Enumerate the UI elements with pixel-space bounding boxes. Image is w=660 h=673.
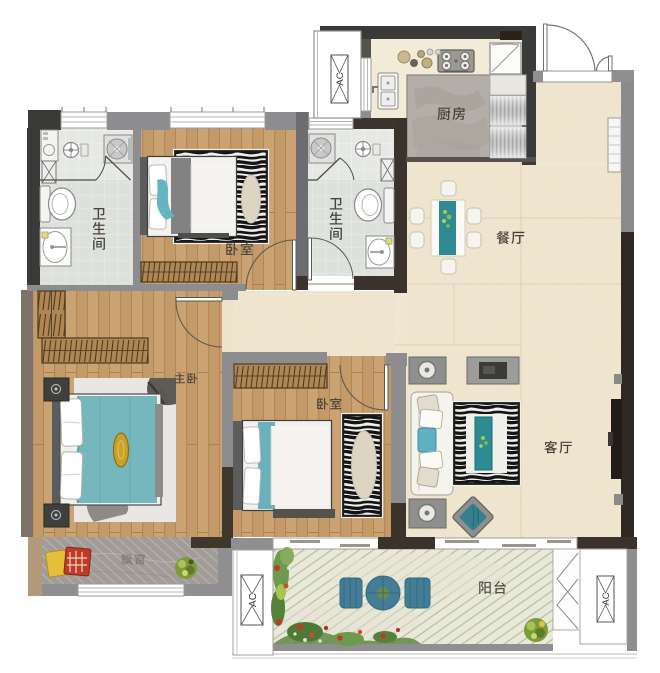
svg-text:AC: AC [335,72,346,85]
svg-text:AC: AC [601,592,612,605]
svg-text:AC: AC [248,593,259,607]
